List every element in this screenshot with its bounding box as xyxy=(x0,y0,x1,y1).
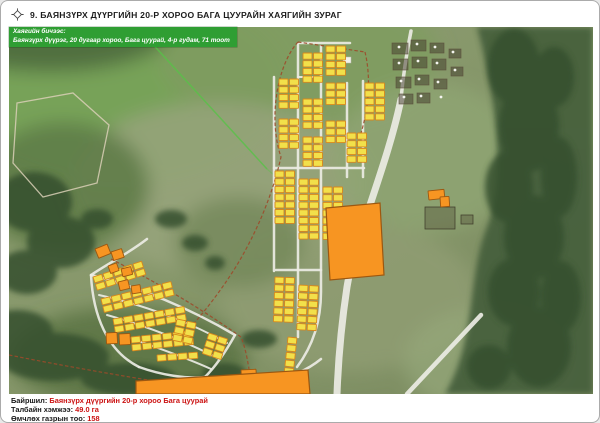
satellite-map xyxy=(9,27,593,394)
address-callout-label: Хаягийн бичээс: xyxy=(13,28,233,37)
location-row: Байршил: Баянзүрх дүүргийн 20-р хороо Ба… xyxy=(11,396,208,405)
area-row: Талбайн хэмжээ: 49.0 га xyxy=(11,405,208,414)
area-value: 49.0 га xyxy=(75,405,99,414)
survey-marker-icon xyxy=(11,8,24,21)
parcel-count-label: Өмчлөх газрын тоо: xyxy=(11,414,85,423)
page-title: 9. БАЯНЗҮРХ ДҮҮРГИЙН 20-Р ХОРОО БАГА ЦУУ… xyxy=(30,10,342,20)
map-legend-footer: Байршил: Баянзүрх дүүргийн 20-р хороо Ба… xyxy=(11,396,208,423)
address-callout: Хаягийн бичээс: Баянзүрх дүүрэг, 20 дуга… xyxy=(9,27,237,47)
location-label: Байршил: xyxy=(11,396,47,405)
parcel-count-value: 158 xyxy=(87,414,99,423)
map-canvas xyxy=(9,27,593,394)
parcel-count-row: Өмчлөх газрын тоо: 158 xyxy=(11,414,208,423)
location-value: Баянзүрх дүүргийн 20-р хороо Бага цуурай xyxy=(49,396,207,405)
header: 9. БАЯНЗҮРХ ДҮҮРГИЙН 20-Р ХОРОО БАГА ЦУУ… xyxy=(11,8,342,21)
document-page: 9. БАЯНЗҮРХ ДҮҮРГИЙН 20-Р ХОРОО БАГА ЦУУ… xyxy=(0,0,600,423)
area-label: Талбайн хэмжээ: xyxy=(11,405,73,414)
address-callout-text: Баянзүрх дүүрэг, 20 дугаар хороо, Бага ц… xyxy=(13,37,233,46)
